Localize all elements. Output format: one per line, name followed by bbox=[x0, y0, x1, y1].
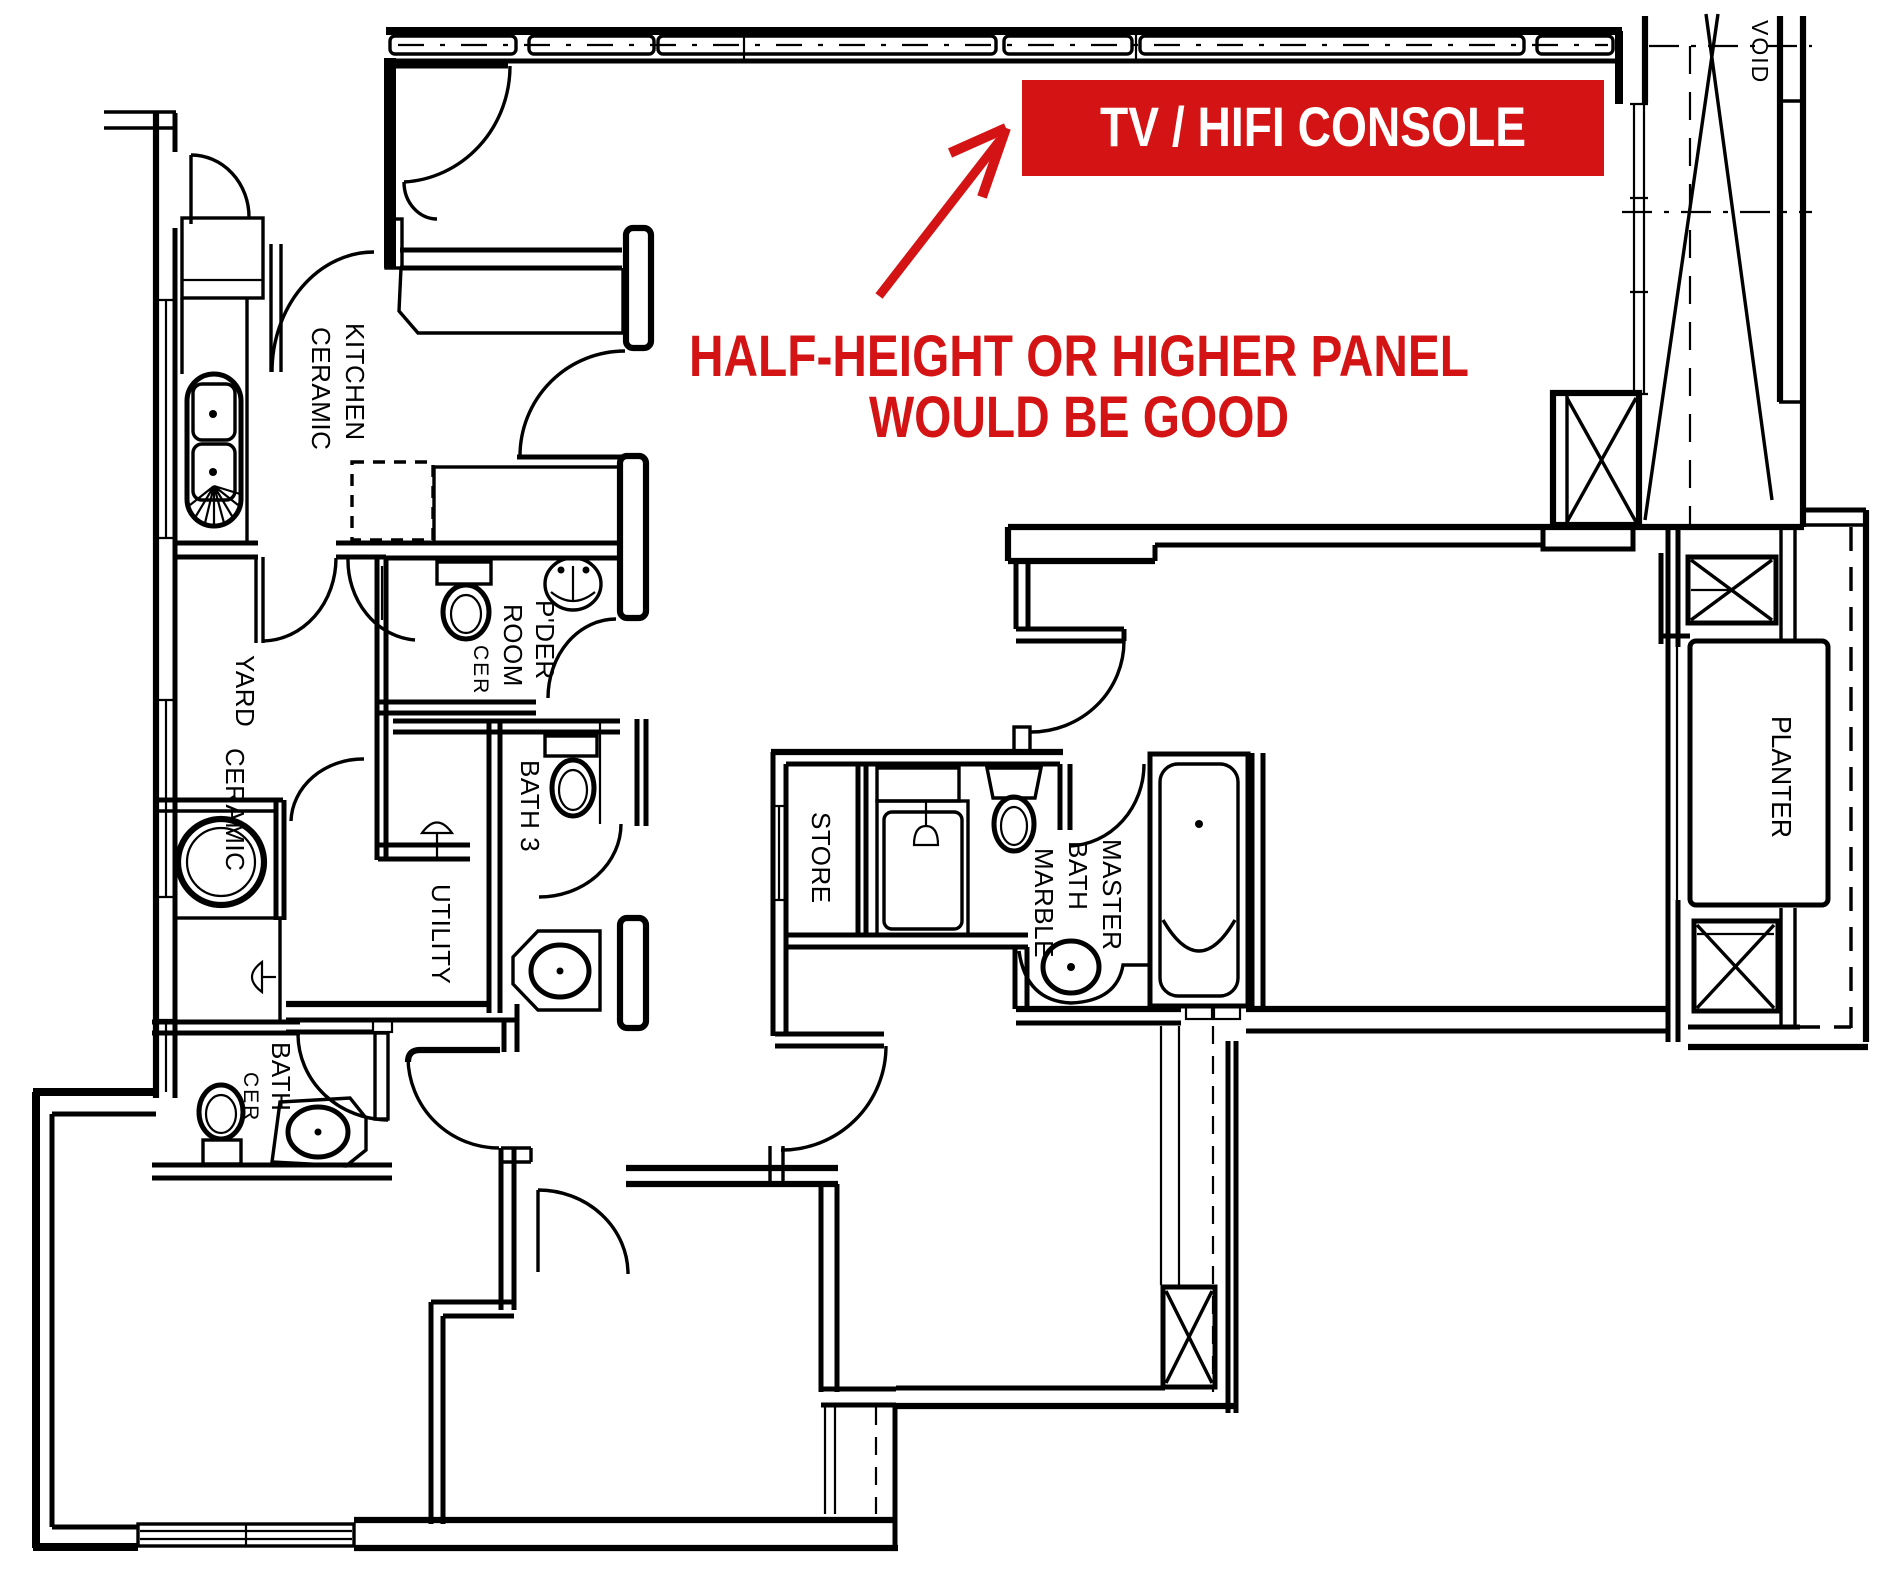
svg-text:TV / HIFI CONSOLE: TV / HIFI CONSOLE bbox=[1100, 95, 1526, 158]
svg-text:YARD: YARD bbox=[230, 655, 260, 727]
svg-text:P'DER: P'DER bbox=[530, 600, 560, 680]
svg-text:HALF-HEIGHT OR HIGHER PANEL: HALF-HEIGHT OR HIGHER PANEL bbox=[689, 324, 1469, 389]
svg-text:WOULD BE GOOD: WOULD BE GOOD bbox=[869, 385, 1289, 450]
svg-text:UTILITY: UTILITY bbox=[426, 884, 456, 984]
svg-text:BATH: BATH bbox=[266, 1042, 296, 1111]
svg-text:CER: CER bbox=[469, 645, 492, 695]
svg-text:CER: CER bbox=[239, 1072, 262, 1122]
svg-text:BATH 3: BATH 3 bbox=[515, 760, 545, 852]
svg-text:PLANTER: PLANTER bbox=[1766, 716, 1797, 838]
svg-text:VOID: VOID bbox=[1747, 20, 1773, 84]
svg-text:STORE: STORE bbox=[806, 812, 836, 904]
svg-text:ROOM: ROOM bbox=[498, 604, 528, 687]
